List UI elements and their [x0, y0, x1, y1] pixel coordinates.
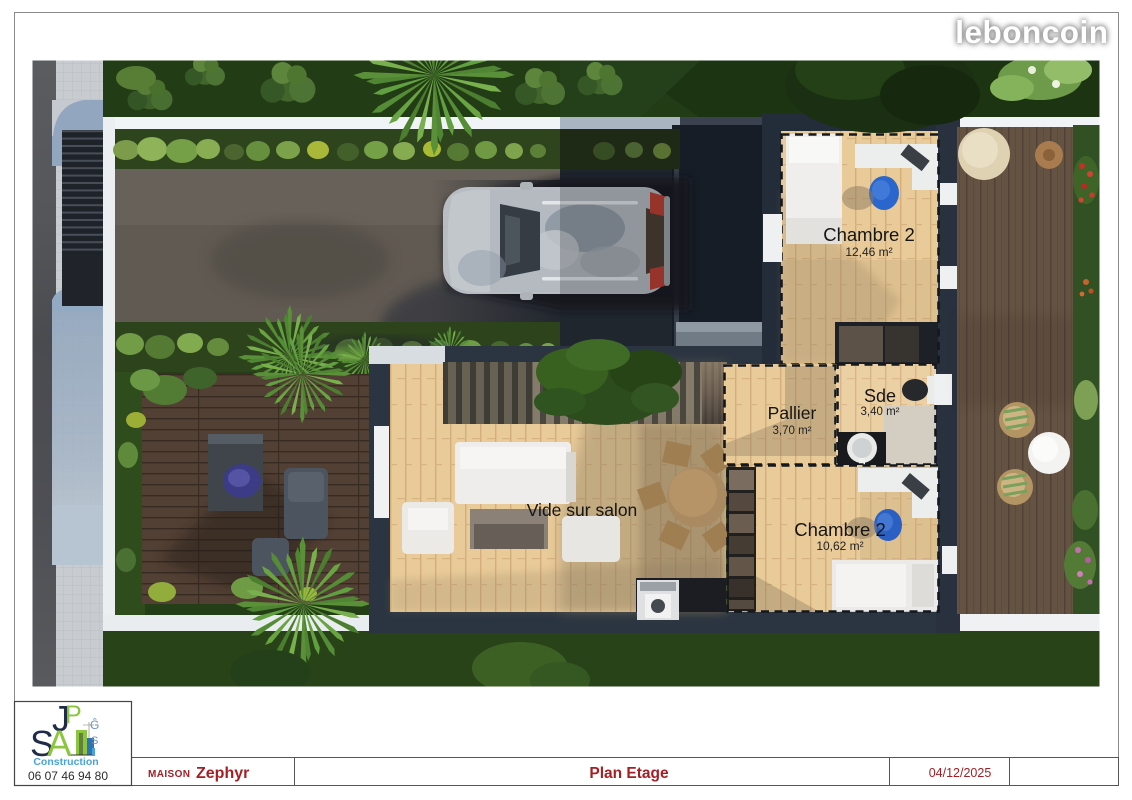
svg-text:Sde: Sde [864, 386, 896, 406]
svg-text:10,62 m²: 10,62 m² [816, 539, 863, 553]
svg-text:Construction: Construction [33, 756, 98, 768]
svg-text:Vide sur salon: Vide sur salon [527, 500, 638, 520]
svg-text:MAISON: MAISON [148, 769, 190, 780]
svg-text:Plan Etage: Plan Etage [589, 765, 669, 782]
svg-text:Pallier: Pallier [768, 403, 817, 423]
svg-text:Chambre 2: Chambre 2 [823, 224, 915, 245]
svg-text:S: S [91, 735, 98, 747]
svg-text:Zephyr: Zephyr [196, 765, 249, 782]
svg-text:leboncoin: leboncoin [955, 14, 1108, 50]
svg-text:04/12/2025: 04/12/2025 [929, 766, 992, 780]
svg-text:3,40 m²: 3,40 m² [861, 406, 900, 418]
svg-text:12,46 m²: 12,46 m² [845, 245, 892, 259]
svg-text:3,70 m²: 3,70 m² [773, 425, 812, 437]
svg-text:Chambre 2: Chambre 2 [794, 519, 886, 540]
svg-text:06 07 46 94 80: 06 07 46 94 80 [28, 769, 108, 783]
svg-text:Ĝ: Ĝ [90, 717, 99, 732]
